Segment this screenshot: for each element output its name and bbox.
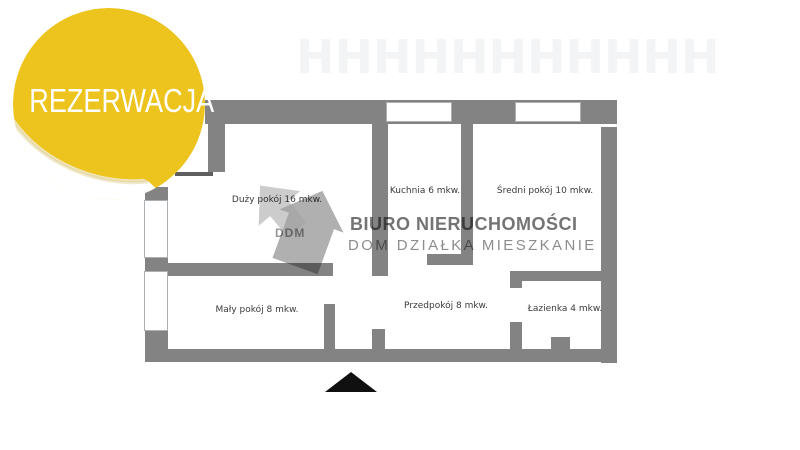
window-kitchen xyxy=(386,102,452,122)
window-large-room xyxy=(144,200,168,258)
faint-h-pattern: HHHHHHHHHHH xyxy=(296,30,719,84)
room-label-lazienka: Łazienka 4 mkw. xyxy=(528,304,602,314)
rezerwacja-badge: REZERWACJA xyxy=(0,0,215,208)
wall-hall-stub-left xyxy=(324,304,335,349)
wall-right xyxy=(601,127,617,363)
wall-bathroom-left xyxy=(510,322,522,349)
window-small-room xyxy=(144,271,168,331)
ddm-logo-icon xyxy=(244,170,348,280)
watermark-agency-tagline: DOM DZIAŁKA MIESZKANIE xyxy=(348,237,597,254)
room-label-przedpokoj: Przedpokój 8 mkw. xyxy=(404,301,488,311)
wall-bathroom-tab xyxy=(510,281,522,288)
ddm-logo-text: DDM xyxy=(275,226,305,240)
wall-bathroom-top xyxy=(510,271,617,281)
room-label-maly-pokoj: Mały pokój 8 mkw. xyxy=(216,305,299,315)
floorplan-page: HHHHHHHHHHH Duży pokój 16 mkw. Kuchnia 6… xyxy=(0,0,800,450)
wall-hall-stub-right xyxy=(372,329,385,349)
watermark-agency-name: BIURO NIERUCHOMOŚCI xyxy=(350,214,578,235)
wall-kitchen-bottom xyxy=(427,254,470,265)
wall-bathroom-stub xyxy=(551,337,570,349)
window-medium-room xyxy=(515,102,581,122)
room-label-kuchnia: Kuchnia 6 mkw. xyxy=(390,186,460,196)
rezerwacja-badge-label: REZERWACJA xyxy=(29,82,186,120)
entrance-triangle-icon xyxy=(325,372,377,392)
room-label-sredni-pokoj: Średni pokój 10 mkw. xyxy=(497,186,593,196)
wall-bottom xyxy=(145,349,617,362)
